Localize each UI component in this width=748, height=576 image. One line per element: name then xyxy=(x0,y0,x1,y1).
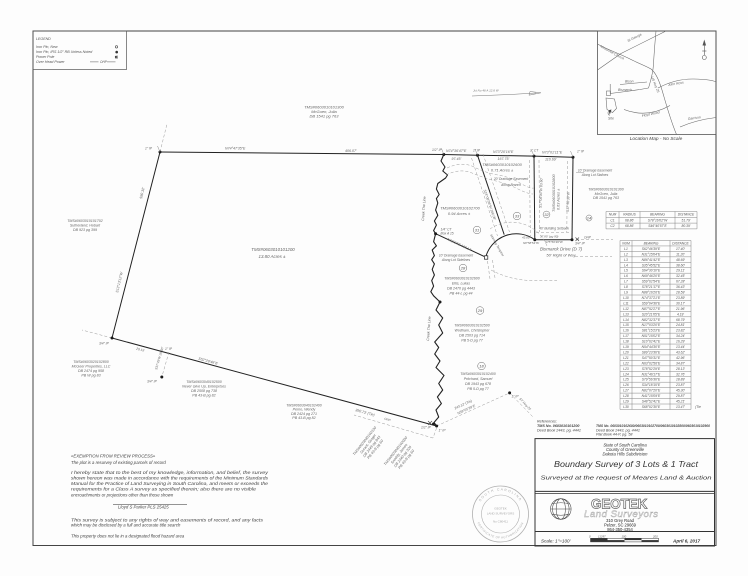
svg-text:S68°02'30"E: S68°02'30"E xyxy=(642,405,661,409)
svg-text:S78°21'17"E: S78°21'17"E xyxy=(642,285,661,289)
svg-text:TMS#0603010101702: TMS#0603010101702 xyxy=(67,219,103,223)
svg-text:N74°47'35"E: N74°47'35"E xyxy=(225,147,246,151)
svg-text:TMS#0603010102800: TMS#0603010102800 xyxy=(552,174,556,212)
svg-text:DB 1541 pg 763: DB 1541 pg 763 xyxy=(310,113,340,118)
svg-text:S59°04'36"E: S59°04'36"E xyxy=(642,301,661,305)
svg-text:11.20': 11.20' xyxy=(676,252,685,256)
svg-text:N73°20'16"E: N73°20'16"E xyxy=(493,150,514,154)
svg-text:18: 18 xyxy=(479,364,484,369)
svg-text:TMS#0603020102800: TMS#0603020102800 xyxy=(73,360,109,364)
svg-text:167.75': 167.75' xyxy=(498,157,510,161)
svg-text:L4: L4 xyxy=(624,263,628,267)
svg-text:PB 5-D pg 77: PB 5-D pg 77 xyxy=(461,338,484,342)
svg-text:L11: L11 xyxy=(623,301,628,305)
svg-text:OHP: OHP xyxy=(584,235,592,239)
svg-text:L25: L25 xyxy=(623,378,629,382)
svg-text:N63°02'56"E: N63°02'56"E xyxy=(642,361,662,365)
svg-text:40' Building Setback: 40' Building Setback xyxy=(539,227,569,231)
svg-text:34.24': 34.24' xyxy=(676,334,685,338)
svg-text:45.21': 45.21' xyxy=(676,400,685,404)
svg-text:Surveyed at the request of Mea: Surveyed at the request of Meares Land &… xyxy=(541,476,712,482)
svg-text:L24: L24 xyxy=(623,372,629,376)
svg-text:S17°50'39"W: S17°50'39"W xyxy=(566,191,571,212)
svg-text:L27: L27 xyxy=(623,389,629,393)
svg-text:S59°02'54"E: S59°02'54"E xyxy=(642,280,661,284)
svg-text:1" IP: 1" IP xyxy=(577,150,585,154)
svg-text:32.45': 32.45' xyxy=(676,274,685,278)
svg-text:30.17': 30.17' xyxy=(676,301,685,305)
svg-text:L13: L13 xyxy=(623,312,629,316)
svg-text:C2: C2 xyxy=(610,224,614,228)
svg-text:L3: L3 xyxy=(624,258,628,262)
svg-text:TMS#0603010102500: TMS#0603010102500 xyxy=(454,324,490,328)
svg-text:N54°44'30"E: N54°44'30"E xyxy=(642,345,662,349)
svg-text:L1: L1 xyxy=(624,247,628,251)
svg-text:DB 2470 pg 4443: DB 2470 pg 4443 xyxy=(447,287,475,291)
svg-text:RADIUS: RADIUS xyxy=(623,213,636,217)
svg-text:13.80 Acres ±: 13.80 Acres ± xyxy=(259,254,286,259)
svg-text:requirements for a Class A sur: requirements for a Class A survey as spe… xyxy=(71,487,257,492)
svg-text:13.44': 13.44' xyxy=(676,345,685,349)
svg-text:L22: L22 xyxy=(623,361,629,365)
svg-text:«EXEMPTION FROM REVIEW PROCESS: «EXEMPTION FROM REVIEW PROCESS» xyxy=(71,454,156,459)
svg-text:97.45': 97.45' xyxy=(452,157,462,161)
svg-text:Location Map - No Scale: Location Map - No Scale xyxy=(630,136,683,142)
svg-text:31: 31 xyxy=(475,228,479,233)
svg-text:N74°37'21"E: N74°37'21"E xyxy=(642,296,662,300)
svg-text:TMS#0603010102400: TMS#0603010102400 xyxy=(460,372,496,376)
svg-text:Boundary Survey of 3 Lots & 1: Boundary Survey of 3 Lots & 1 Tract xyxy=(554,459,699,469)
svg-text:N51°15'02"E: N51°15'02"E xyxy=(642,334,662,338)
svg-text:S47°50'31"E: S47°50'31"E xyxy=(642,356,661,360)
svg-text:32.76': 32.76' xyxy=(676,372,685,376)
svg-text:PB 5-D pg 77: PB 5-D pg 77 xyxy=(467,387,490,391)
svg-text:L9: L9 xyxy=(624,291,628,295)
svg-text:L7: L7 xyxy=(624,280,628,284)
svg-text:L5: L5 xyxy=(624,269,628,273)
svg-text:which may be disclosed by a fu: which may be disclosed by a full and acc… xyxy=(71,523,181,528)
svg-text:110.69': 110.69' xyxy=(545,157,557,161)
svg-text:0.63 Acres ±: 0.63 Acres ± xyxy=(557,189,561,210)
svg-text:1/2" IP: 1/2" IP xyxy=(432,148,443,152)
svg-text:N73°01'11"E: N73°01'11"E xyxy=(542,151,563,155)
svg-text:TMS#0603010102700: TMS#0603010102700 xyxy=(440,205,480,210)
svg-text:864-350-4354: 864-350-4354 xyxy=(607,527,633,532)
svg-text:N17°03'20"E: N17°03'20"E xyxy=(642,323,662,327)
svg-text:43.62': 43.62' xyxy=(676,350,685,354)
svg-text:DB 2474 pg 958: DB 2474 pg 958 xyxy=(78,369,104,373)
svg-text:GEOTEK: GEOTEK xyxy=(494,507,507,511)
svg-text:23.89': 23.89' xyxy=(675,296,685,300)
svg-text:shown hereon was made in accor: shown hereon was made in accordance with… xyxy=(71,476,269,481)
svg-text:Wodham, Christopher: Wodham, Christopher xyxy=(455,329,491,333)
svg-text:L26: L26 xyxy=(623,383,629,387)
svg-text:13.47': 13.47' xyxy=(676,405,685,409)
svg-text:Along Lot Sidelines: Along Lot Sidelines xyxy=(441,258,471,262)
svg-text:34.87': 34.87' xyxy=(676,361,685,365)
svg-text:406.07': 406.07' xyxy=(345,149,357,153)
svg-text:S78°16'02"W: S78°16'02"W xyxy=(648,218,668,222)
svg-text:OHP: OHP xyxy=(100,60,108,64)
svg-text:L10: L10 xyxy=(623,296,629,300)
svg-text:14: 14 xyxy=(587,216,592,221)
svg-text:L12: L12 xyxy=(623,307,629,311)
svg-text:DB 1943 pg 678: DB 1943 pg 678 xyxy=(465,382,491,386)
svg-text:Deed Book 2443, pg. 4441: Deed Book 2443, pg. 4441 xyxy=(537,428,581,432)
svg-text:11297: 11297 xyxy=(598,534,606,538)
svg-text:L8: L8 xyxy=(624,285,628,289)
svg-text:L18: L18 xyxy=(623,340,629,344)
svg-text:S10°02'41"E: S10°02'41"E xyxy=(642,340,661,344)
svg-text:1" IP: 1" IP xyxy=(512,395,520,399)
svg-text:68.86': 68.86' xyxy=(625,224,634,228)
svg-text:Iron Pin, New: Iron Pin, New xyxy=(36,45,58,49)
svg-text:DB 923 pg 399: DB 923 pg 399 xyxy=(73,228,97,232)
svg-text:The plot is a resurvey of exis: The plot is a resurvey of existing parce… xyxy=(71,460,166,465)
svg-text:68.79': 68.79' xyxy=(676,318,685,322)
svg-text:No C80411: No C80411 xyxy=(493,520,508,524)
svg-text:Dakota Hills Subdivision: Dakota Hills Subdivision xyxy=(603,452,649,457)
svg-text:PB W pg 83: PB W pg 83 xyxy=(81,374,100,378)
svg-text:NUM: NUM xyxy=(622,241,630,245)
svg-text:S34°18'15"E: S34°18'15"E xyxy=(642,383,661,387)
svg-text:51.79': 51.79' xyxy=(682,218,691,222)
svg-text:N86°41'42"E: N86°41'42"E xyxy=(642,258,662,262)
svg-text:S64°30'10"E: S64°30'10"E xyxy=(642,269,661,273)
svg-text:23.87': 23.87' xyxy=(675,383,685,387)
svg-text:LEGEND: LEGEND xyxy=(36,37,51,41)
svg-text:L17: L17 xyxy=(623,334,629,338)
svg-text:N69°46'20"E: N69°46'20"E xyxy=(642,274,662,278)
svg-text:3/4" IP: 3/4" IP xyxy=(99,342,110,346)
svg-text:L23: L23 xyxy=(623,367,629,371)
svg-text:1" IP: 1" IP xyxy=(439,429,447,433)
svg-text:N31°46'17"E: N31°46'17"E xyxy=(642,372,662,376)
svg-text:TMS#0603040102500: TMS#0603040102500 xyxy=(186,380,222,384)
svg-text:(Tie: (Tie xyxy=(695,405,701,409)
svg-text:L14: L14 xyxy=(623,318,629,322)
svg-text:20' Drainage Easement: 20' Drainage Easement xyxy=(493,177,529,181)
svg-text:PB 43-B pg 82: PB 43-B pg 82 xyxy=(292,416,315,420)
svg-text:L21: L21 xyxy=(623,356,629,360)
svg-text:N31°15'04"E: N31°15'04"E xyxy=(642,252,662,256)
svg-text:Over Head Power: Over Head Power xyxy=(36,60,65,64)
svg-text:TMS No. 0603010102600/06030101: TMS No. 0603010102600/0603010102700/0603… xyxy=(596,424,711,428)
svg-text:DISTANCE: DISTANCE xyxy=(678,213,695,217)
svg-text:TMS#0603010102600: TMS#0603010102600 xyxy=(444,277,480,281)
svg-text:1/2" IP: 1/2" IP xyxy=(421,426,432,430)
svg-text:Along Lot Stalines: Along Lot Stalines xyxy=(581,173,609,177)
svg-text:45.30': 45.30' xyxy=(676,389,685,393)
svg-text:S48°52'41"E: S48°52'41"E xyxy=(642,400,661,404)
svg-text:L16: L16 xyxy=(623,329,629,333)
svg-text:PB 44-L pg 44: PB 44-L pg 44 xyxy=(450,291,473,295)
svg-text:TMS#0603010101200: TMS#0603010101200 xyxy=(251,247,295,252)
svg-text:100: 100 xyxy=(622,534,627,538)
svg-text:32: 32 xyxy=(544,212,549,217)
svg-text:References:: References: xyxy=(537,419,557,423)
svg-text:Plat Book 44-P, pg. 58: Plat Book 44-P, pg. 58 xyxy=(596,433,633,437)
svg-text:BEARING: BEARING xyxy=(644,241,659,245)
svg-text:3/4" IP: 3/4" IP xyxy=(147,380,158,384)
svg-text:48.69': 48.69' xyxy=(676,258,685,262)
svg-text:L29: L29 xyxy=(623,400,629,404)
svg-text:S89°23'36"E: S89°23'36"E xyxy=(642,350,661,354)
svg-text:Lloyd S Parker PLS 25425: Lloyd S Parker PLS 25425 xyxy=(118,505,169,510)
svg-text:Bismarck: Bismarck xyxy=(618,88,632,92)
svg-text:80.39': 80.39' xyxy=(682,224,691,228)
svg-text:4.19': 4.19' xyxy=(677,312,684,316)
svg-text:Scale: 1"=100': Scale: 1"=100' xyxy=(541,539,571,544)
svg-text:Iron Pin, IRS 1/2" RB Unless N: Iron Pin, IRS 1/2" RB Unless Noted xyxy=(36,50,93,54)
svg-text:Jct No 46 A 12.6 W: Jct No 46 A 12.6 W xyxy=(473,89,500,93)
svg-text:This property does not lie in: This property does not lie in a designat… xyxy=(71,534,185,539)
svg-text:37.85' (pg 90): 37.85' (pg 90) xyxy=(540,235,558,239)
svg-text:S20°21'05"E: S20°21'05"E xyxy=(642,312,661,316)
svg-text:L20: L20 xyxy=(623,350,629,354)
svg-text:April 6, 2017: April 6, 2017 xyxy=(672,539,701,544)
svg-text:0.71 Acres ±: 0.71 Acres ± xyxy=(491,167,514,172)
svg-text:28: 28 xyxy=(460,266,466,271)
svg-text:50' Right of Way: 50' Right of Way xyxy=(546,252,576,257)
svg-text:28.13': 28.13' xyxy=(675,367,685,371)
svg-text:N41°15'09"E: N41°15'09"E xyxy=(642,394,662,398)
svg-text:Site: Site xyxy=(608,117,614,121)
svg-text:DB 2503 pg 714: DB 2503 pg 714 xyxy=(459,334,485,338)
svg-text:I hereby state that to the bes: I hereby state that to the best of my kn… xyxy=(71,470,269,475)
svg-text:N82°07'20"E: N82°07'20"E xyxy=(642,389,662,393)
svg-text:DISTANCE: DISTANCE xyxy=(672,241,689,245)
svg-text:1" CT: 1" CT xyxy=(530,149,539,153)
svg-text:Manual for the Practice of Lan: Manual for the Practice of Land Surveyin… xyxy=(71,481,269,486)
svg-text:21.96': 21.96' xyxy=(675,307,685,311)
svg-text:3/4" IP: 3/4" IP xyxy=(575,242,586,246)
svg-text:PB 43-B pg 82: PB 43-B pg 82 xyxy=(192,393,215,397)
svg-text:TMS#0603010102600: TMS#0603010102600 xyxy=(482,162,522,167)
svg-text:LAND SURVEYORS: LAND SURVEYORS xyxy=(487,512,515,516)
svg-text:L2: L2 xyxy=(624,252,628,256)
svg-text:Bison: Bison xyxy=(625,80,634,84)
svg-text:Never Give Up, Enterprises: Never Give Up, Enterprises xyxy=(182,384,226,388)
svg-text:28.59': 28.59' xyxy=(675,291,685,295)
svg-text:N88°16'26"E: N88°16'26"E xyxy=(642,291,662,295)
svg-text:L30: L30 xyxy=(623,405,629,409)
svg-text:29.11': 29.11' xyxy=(675,269,685,273)
svg-text:TMS No. 0603010101200: TMS No. 0603010101200 xyxy=(537,424,580,428)
svg-text:Deed Book 2443, pg. 4441: Deed Book 2443, pg. 4441 xyxy=(596,428,640,432)
svg-text:29.87': 29.87' xyxy=(675,394,685,398)
svg-text:S79°56'36"E: S79°56'36"E xyxy=(642,378,661,382)
svg-text:Pritchard, Samuel: Pritchard, Samuel xyxy=(464,377,493,381)
svg-text:DB 1541 pg 763: DB 1541 pg 763 xyxy=(593,196,619,200)
svg-text:68.86': 68.86' xyxy=(625,218,634,222)
svg-text:S46°40'57"E: S46°40'57"E xyxy=(648,224,667,228)
svg-text:23.82': 23.82' xyxy=(675,329,685,333)
svg-text:Sutherland, Hobart: Sutherland, Hobart xyxy=(70,224,101,228)
svg-text:encroachments or projections o: encroachments or projections other than … xyxy=(71,492,174,497)
svg-text:McGeer Properties, LLC: McGeer Properties, LLC xyxy=(72,365,111,369)
svg-text:S81°15'23"E: S81°15'23"E xyxy=(642,329,661,333)
svg-text:N82°32'37"E: N82°32'37"E xyxy=(642,318,662,322)
svg-text:L19: L19 xyxy=(623,345,629,349)
svg-text:1" IP: 1" IP xyxy=(145,147,153,151)
svg-text:Bismarck Drive (D 7): Bismarck Drive (D 7) xyxy=(540,247,583,252)
svg-text:67.28': 67.28' xyxy=(676,280,685,284)
svg-text:1" IP: 1" IP xyxy=(165,347,173,351)
svg-text:0.94 Acres ±: 0.94 Acres ± xyxy=(448,211,471,216)
svg-text:Ellis, Lukas: Ellis, Lukas xyxy=(452,282,470,286)
svg-text:42.96': 42.96' xyxy=(676,356,685,360)
svg-text:33: 33 xyxy=(515,214,520,219)
svg-text:C1: C1 xyxy=(610,218,614,222)
svg-text:L6: L6 xyxy=(624,274,628,278)
svg-text:S35°45'52"E: S35°45'52"E xyxy=(642,263,661,267)
svg-text:Power Pole: Power Pole xyxy=(36,55,54,59)
svg-text:S78°52'29"E: S78°52'29"E xyxy=(642,367,661,371)
svg-text:Box A 15: Box A 15 xyxy=(441,231,454,235)
svg-text:Along Branch: Along Branch xyxy=(500,183,521,187)
svg-text:L28: L28 xyxy=(623,394,629,398)
svg-text:NUM: NUM xyxy=(609,213,617,217)
svg-text:18.89': 18.89' xyxy=(676,378,685,382)
svg-text:BEARING: BEARING xyxy=(650,213,665,217)
svg-text:1" IP: 1" IP xyxy=(473,149,481,153)
svg-text:S75°50'39"W: S75°50'39"W xyxy=(545,240,564,244)
svg-text:43.60': 43.60' xyxy=(522,235,531,239)
svg-text:16.29': 16.29' xyxy=(676,340,685,344)
svg-text:S8°58'54"W: S8°58'54"W xyxy=(523,241,540,245)
svg-text:200: 200 xyxy=(652,534,658,538)
svg-text:L15: L15 xyxy=(623,323,629,327)
svg-text:36.43': 36.43' xyxy=(676,285,685,289)
svg-text:N87°52'27"E: N87°52'27"E xyxy=(642,307,662,311)
svg-text:DB 2508 pg 738: DB 2508 pg 738 xyxy=(191,389,217,393)
svg-text:S62°46'39"E: S62°46'39"E xyxy=(642,247,661,251)
svg-text:29: 29 xyxy=(477,308,483,313)
svg-text:N74°36'47"E: N74°36'47"E xyxy=(446,149,467,153)
svg-text:38.60': 38.60' xyxy=(676,263,685,267)
svg-text:24.81': 24.81' xyxy=(675,323,685,327)
svg-text:17.40': 17.40' xyxy=(676,247,685,251)
